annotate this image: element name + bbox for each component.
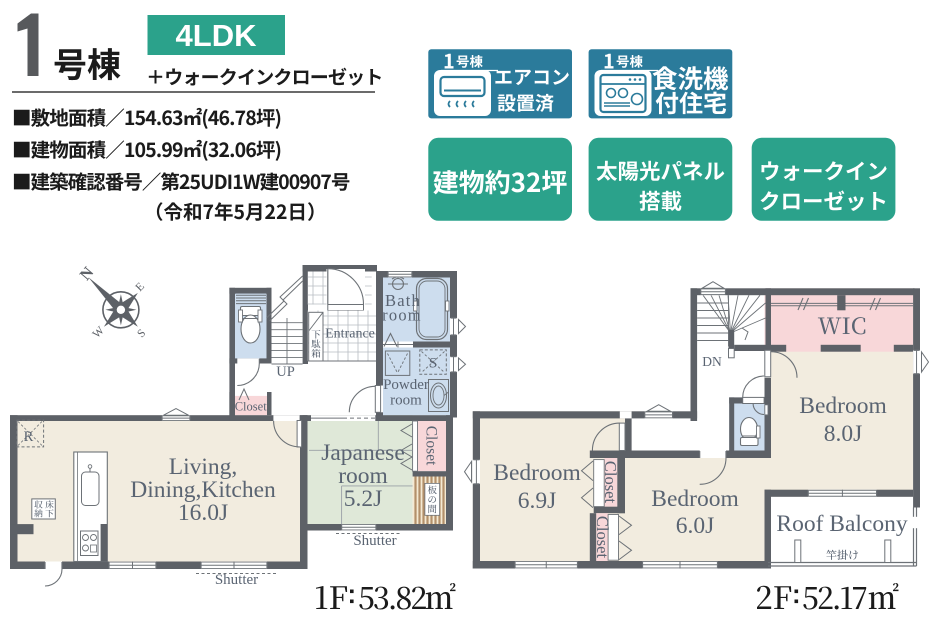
svg-text:6.0J: 6.0J [676, 513, 715, 539]
svg-text:6.9J: 6.9J [518, 488, 557, 514]
svg-text:Closet: Closet [601, 461, 620, 504]
svg-text:Powder: Powder [383, 377, 429, 393]
svg-text:room: room [390, 393, 422, 409]
svg-text:Closet: Closet [423, 426, 440, 466]
svg-text:Closet: Closet [235, 400, 267, 414]
svg-text:room: room [382, 306, 422, 325]
svg-text:Bedroom: Bedroom [651, 486, 738, 512]
svg-text:5.2J: 5.2J [344, 486, 383, 512]
svg-text:Shutter: Shutter [353, 533, 396, 549]
svg-text:R: R [24, 429, 34, 445]
svg-text:DN: DN [702, 354, 722, 369]
svg-text:4LDK: 4LDK [176, 18, 258, 53]
svg-text:Bedroom: Bedroom [493, 460, 580, 486]
svg-text:Bedroom: Bedroom [799, 393, 886, 419]
svg-text:S: S [429, 356, 437, 372]
svg-text:UP: UP [276, 364, 295, 380]
svg-text:16.0J: 16.0J [178, 500, 228, 526]
svg-text:Shutter: Shutter [215, 572, 258, 588]
svg-text:Roof Balcony: Roof Balcony [776, 511, 907, 537]
svg-text:Entrance: Entrance [325, 327, 375, 342]
svg-text:8.0J: 8.0J [824, 421, 863, 447]
svg-text:Closet: Closet [593, 516, 612, 559]
